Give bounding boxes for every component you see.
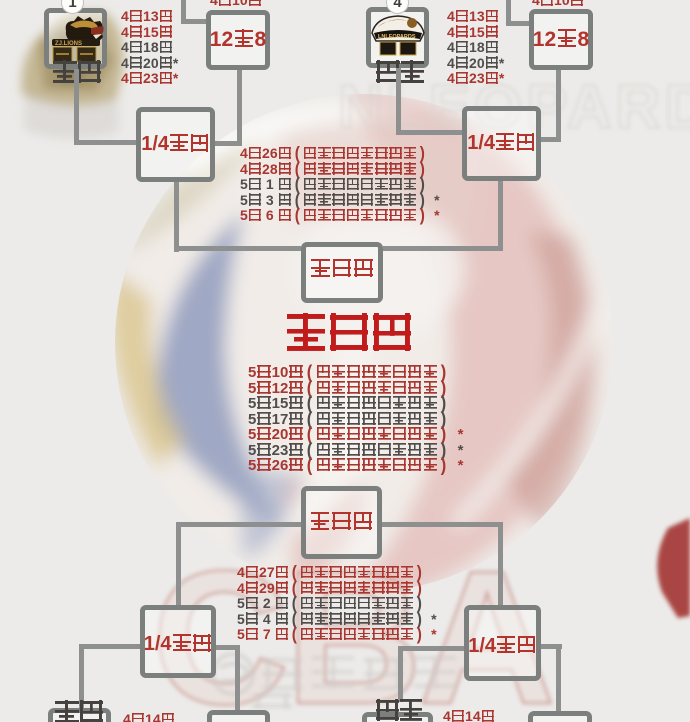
- svg-text:ZJ.LIONS: ZJ.LIONS: [55, 41, 82, 47]
- svg-text:LNLEOPARDS: LNLEOPARDS: [378, 34, 416, 40]
